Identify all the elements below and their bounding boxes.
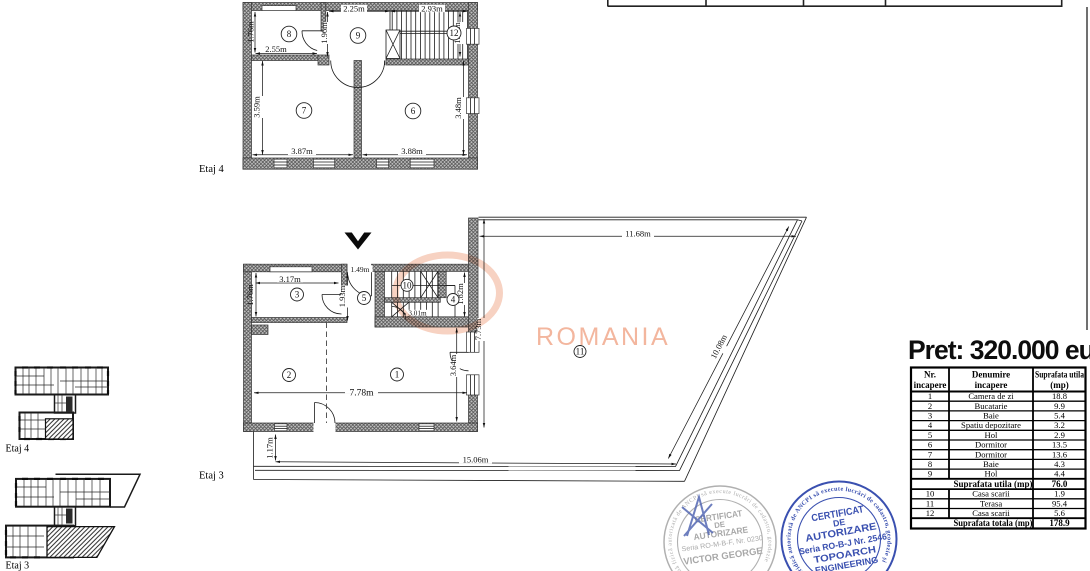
svg-text:3.59m: 3.59m [252,96,262,118]
svg-text:10: 10 [403,280,413,290]
svg-text:18.8: 18.8 [1052,391,1067,401]
svg-text:4: 4 [928,420,933,430]
svg-text:Bucatarie: Bucatarie [975,401,1008,411]
svg-text:3.87m: 3.87m [291,146,313,156]
svg-text:8: 8 [928,459,932,469]
svg-text:7: 7 [928,449,933,459]
svg-text:3.17m: 3.17m [279,274,301,284]
svg-text:6: 6 [411,106,416,116]
svg-text:1.96m: 1.96m [319,22,329,44]
svg-text:incapere: incapere [975,380,1008,390]
svg-text:Suprafata utila: Suprafata utila [1035,370,1084,380]
svg-text:2.25m: 2.25m [343,4,365,14]
svg-text:Nr.: Nr. [924,370,936,380]
svg-text:Denumire: Denumire [972,370,1010,380]
svg-text:1.76m: 1.76m [245,284,255,306]
svg-text:1.49m: 1.49m [351,265,370,274]
svg-text:3.64m: 3.64m [448,354,458,376]
svg-text:Etaj 3: Etaj 3 [199,471,224,482]
svg-text:Suprafata utila (mp): Suprafata utila (mp) [954,479,1033,489]
svg-text:2.9: 2.9 [1054,430,1065,440]
svg-text:5: 5 [362,293,367,303]
svg-text:Baie: Baie [983,459,999,469]
svg-text:3.2: 3.2 [1054,420,1065,430]
svg-text:Casa scarii: Casa scarii [972,508,1010,518]
svg-text:Dormitor: Dormitor [975,449,1007,459]
svg-text:11: 11 [926,498,934,508]
svg-text:(mp): (mp) [1050,380,1069,390]
svg-text:12: 12 [450,28,459,38]
svg-text:incapere: incapere [914,380,947,390]
svg-text:1.9: 1.9 [1054,489,1065,499]
svg-text:Etaj 4: Etaj 4 [6,444,30,455]
svg-text:ROMANIA: ROMANIA [536,323,670,351]
svg-text:Baie: Baie [983,411,999,421]
svg-text:1: 1 [928,391,932,401]
svg-text:95.4: 95.4 [1052,498,1068,508]
svg-text:2: 2 [287,370,292,380]
svg-text:4.3: 4.3 [1054,459,1065,469]
svg-text:Hol: Hol [985,469,999,479]
svg-text:9: 9 [928,469,932,479]
svg-text:178.9: 178.9 [1049,518,1070,528]
svg-text:12: 12 [926,508,935,518]
svg-text:1.17m: 1.17m [264,437,274,459]
svg-text:4: 4 [451,295,456,305]
svg-text:Suprafata totala (mp): Suprafata totala (mp) [954,518,1033,528]
svg-text:5.6: 5.6 [1054,508,1065,518]
svg-text:Pret: 320.000 eur: Pret: 320.000 eur [908,335,1090,365]
svg-text:13.5: 13.5 [1052,440,1067,450]
svg-text:8: 8 [287,29,292,39]
svg-text:6: 6 [928,440,933,450]
svg-text:3: 3 [295,290,300,300]
svg-text:7.78m: 7.78m [349,389,374,399]
svg-text:7: 7 [302,106,307,116]
svg-text:3.88m: 3.88m [401,146,423,156]
svg-text:Spatiu depozitare: Spatiu depozitare [961,420,1021,430]
svg-text:Camera de zi: Camera de zi [968,391,1014,401]
svg-text:1.76m: 1.76m [246,21,256,43]
svg-text:Dormitor: Dormitor [975,440,1007,450]
svg-text:2.55m: 2.55m [265,44,287,54]
svg-text:11.68m: 11.68m [625,229,651,239]
svg-text:13.6: 13.6 [1052,449,1068,459]
svg-text:1: 1 [395,370,400,380]
svg-text:3.48m: 3.48m [453,97,463,119]
svg-text:9.9: 9.9 [1054,401,1065,411]
svg-text:3: 3 [928,411,932,421]
svg-text:Etaj 4: Etaj 4 [199,164,225,175]
svg-text:9: 9 [356,31,361,41]
svg-text:15.06m: 15.06m [463,455,489,465]
svg-text:2.93m: 2.93m [421,4,443,14]
svg-text:Casa scarii: Casa scarii [972,489,1010,499]
svg-text:Etaj 3: Etaj 3 [6,561,30,571]
svg-text:4.4: 4.4 [1054,469,1065,479]
svg-text:10: 10 [926,489,935,499]
svg-text:5: 5 [928,430,932,440]
svg-text:Hol: Hol [985,430,999,440]
svg-text:5.4: 5.4 [1054,411,1065,421]
svg-text:2: 2 [928,401,932,411]
svg-text:76.0: 76.0 [1052,479,1068,489]
svg-text:1.93m: 1.93m [337,285,347,307]
svg-text:Terasa: Terasa [980,498,1002,508]
